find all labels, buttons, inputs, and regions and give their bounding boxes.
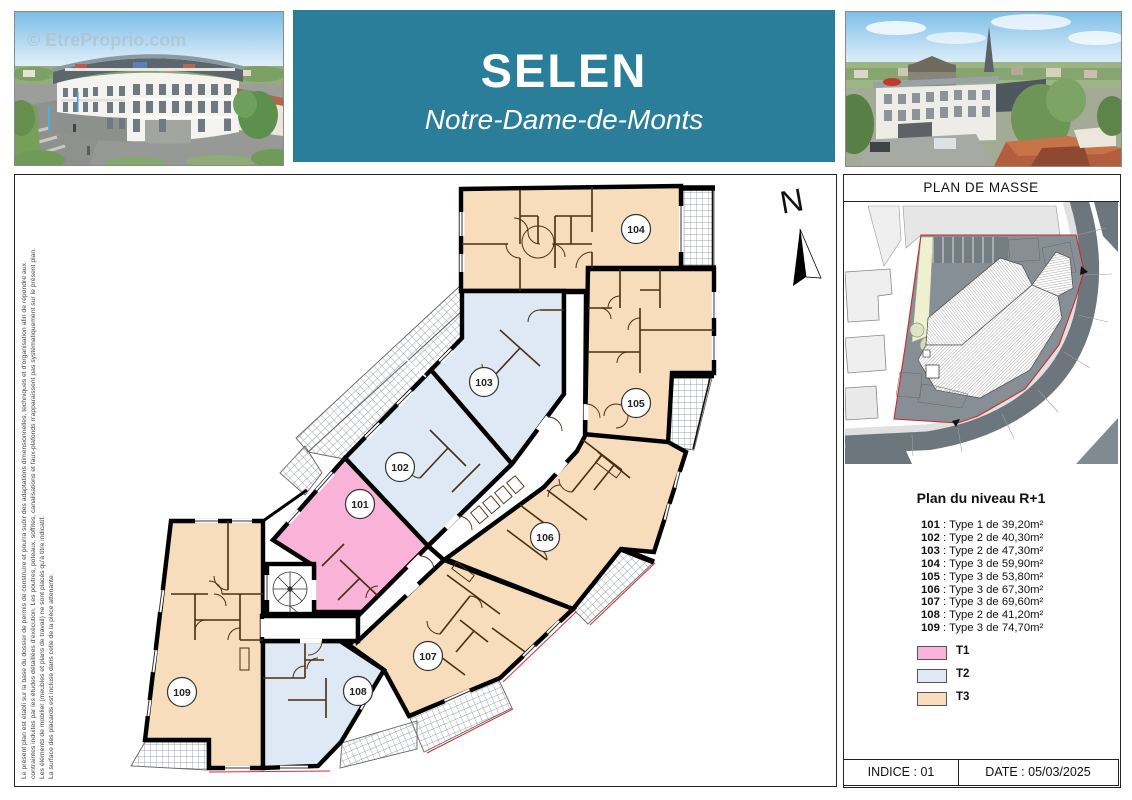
svg-text:108: 108 xyxy=(349,686,367,698)
svg-text:107: 107 xyxy=(419,651,437,663)
svg-text:109: 109 xyxy=(173,687,191,699)
svg-text:104: 104 xyxy=(627,224,645,236)
svg-text:contraintes induites par les é: contraintes induites par les études déta… xyxy=(30,248,37,779)
svg-text:Les éléments de mobilier (meub: Les éléments de mobilier (meubles et pla… xyxy=(39,516,46,779)
svg-text:101: 101 xyxy=(351,499,369,511)
svg-text:102: 102 xyxy=(391,462,409,474)
svg-text:N: N xyxy=(777,181,806,220)
svg-text:103: 103 xyxy=(475,377,493,389)
svg-text:Le présent plan est établi sur: Le présent plan est établi sur la base d… xyxy=(21,262,28,779)
svg-text:La surface des placards est in: La surface des placards est incluse dans… xyxy=(48,573,55,779)
svg-text:106: 106 xyxy=(536,532,554,544)
svg-text:© EtreProprio.com: © EtreProprio.com xyxy=(27,30,186,50)
svg-text:105: 105 xyxy=(627,398,645,410)
